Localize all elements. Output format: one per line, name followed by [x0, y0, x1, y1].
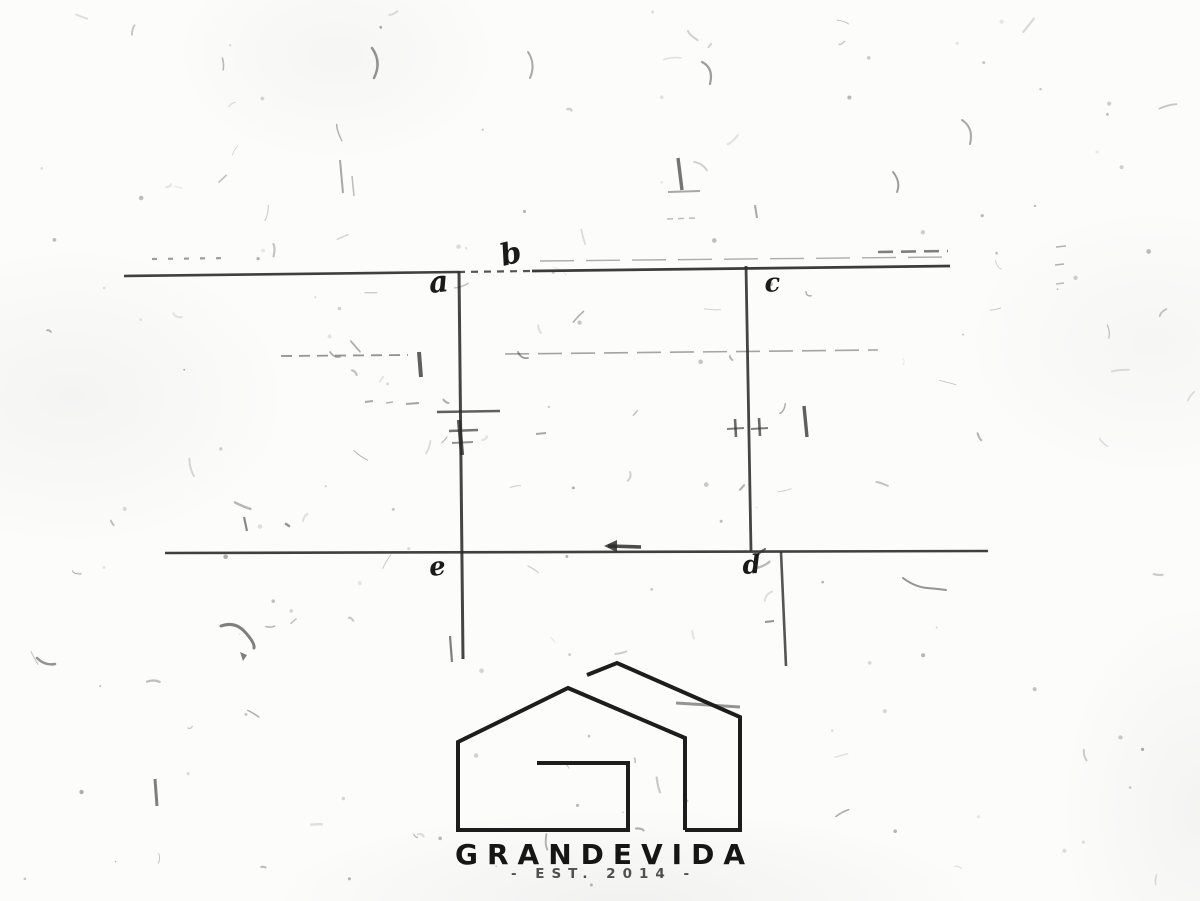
noise-stroke [551, 637, 555, 642]
noise-stroke [265, 205, 269, 220]
sketch-mark [903, 578, 946, 590]
noise-stroke [835, 754, 848, 758]
sketch-segment [406, 403, 419, 404]
noise-speck [479, 668, 484, 673]
noise-stroke [1160, 309, 1167, 316]
noise-speck [847, 95, 851, 99]
noise-speck [139, 318, 142, 321]
noise-stroke [633, 411, 637, 415]
sketch-arrowhead [604, 540, 617, 552]
noise-speck [139, 196, 143, 200]
sketch-mark [221, 624, 254, 648]
noise-stroke [188, 726, 192, 728]
noise-stroke [730, 356, 733, 360]
sketch-mark [37, 658, 55, 664]
noise-speck [982, 61, 985, 64]
noise-stroke [414, 835, 418, 838]
sketch-mark [702, 62, 711, 84]
noise-speck [821, 581, 824, 584]
noise-stroke [806, 292, 811, 296]
noise-speck [590, 884, 593, 887]
noise-speck [244, 713, 247, 716]
sketch-segment [804, 406, 807, 437]
noise-speck [392, 508, 395, 511]
noise-speck [187, 772, 190, 775]
sketch-segment [124, 272, 458, 276]
sketch-mark [372, 48, 378, 78]
noise-speck [1034, 205, 1036, 207]
noise-speck [523, 210, 526, 213]
noise-stroke [688, 31, 698, 40]
noise-stroke [352, 370, 357, 375]
corner-label-b: b [496, 235, 525, 274]
noise-stroke [1154, 574, 1163, 575]
noise-speck [1129, 786, 1132, 789]
noise-speck [1107, 101, 1111, 105]
noise-stroke [273, 244, 274, 256]
noise-speck [588, 735, 591, 738]
noise-stroke [634, 758, 635, 762]
noise-speck [883, 709, 887, 713]
noise-stroke [222, 58, 223, 70]
noise-stroke [349, 618, 354, 621]
noise-speck [325, 485, 327, 487]
noise-speck [651, 11, 654, 14]
noise-speck [660, 95, 664, 99]
noise-speck [258, 524, 263, 529]
noise-stroke [303, 514, 307, 521]
noise-speck [379, 26, 382, 29]
sketch-segment [532, 266, 950, 271]
sketch-arrowhead [240, 652, 247, 661]
noise-stroke [778, 489, 792, 492]
noise-speck [99, 685, 101, 687]
noise-speck [572, 486, 575, 489]
noise-speck [1073, 276, 1077, 280]
noise-stroke [692, 631, 694, 638]
noise-stroke [664, 58, 681, 60]
noise-speck [936, 626, 938, 628]
sketch-segment [678, 158, 682, 190]
noise-stroke [978, 433, 982, 440]
sketch-segment [505, 350, 878, 354]
noise-stroke [939, 380, 956, 384]
noise-speck [704, 482, 709, 487]
noise-stroke [426, 441, 431, 454]
noise-stroke [1100, 439, 1108, 447]
noise-stroke [248, 710, 259, 717]
noise-speck [102, 566, 105, 569]
noise-stroke [73, 571, 82, 574]
noise-speck [698, 360, 703, 365]
noise-speck [868, 661, 872, 665]
noise-speck [1141, 748, 1144, 751]
sketch-segment [152, 258, 232, 259]
noise-stroke [219, 175, 226, 182]
noise-stroke [615, 651, 626, 654]
noise-speck [257, 257, 260, 260]
noise-stroke [573, 311, 583, 322]
noise-stroke [1023, 19, 1034, 32]
corner-label-a: a [427, 264, 450, 301]
noise-speck [565, 555, 568, 558]
noise-stroke [694, 162, 707, 171]
noise-stroke [510, 485, 520, 487]
noise-speck [981, 214, 984, 217]
noise-speck [261, 97, 265, 101]
logo-house-outline [587, 663, 740, 830]
sketch-segment [459, 271, 463, 659]
sketch-segment [751, 428, 768, 429]
noise-stroke [780, 404, 786, 414]
noise-speck [338, 307, 341, 310]
sketch-segment [878, 251, 948, 252]
sketch-segment [540, 257, 946, 261]
noise-speck [548, 406, 550, 408]
noise-stroke [740, 485, 744, 489]
noise-speck [474, 753, 478, 757]
noise-stroke [291, 619, 296, 624]
scan-noise-layer [23, 11, 1194, 887]
noise-speck [1033, 687, 1037, 691]
noise-stroke [444, 400, 449, 403]
sketch-segment [165, 551, 988, 553]
noise-speck [1118, 735, 1122, 739]
sketch-segment [459, 420, 462, 455]
noise-speck [407, 547, 410, 550]
noise-stroke [581, 230, 585, 244]
sketch-segment [755, 205, 757, 218]
noise-speck [568, 653, 571, 656]
sketch-segment [458, 271, 532, 272]
noise-speck [482, 129, 484, 131]
noise-speck [1146, 249, 1151, 254]
sketch-segment [667, 218, 697, 219]
noise-speck [977, 815, 980, 818]
noise-speck [660, 181, 662, 183]
noise-stroke [442, 437, 447, 443]
noise-stroke [455, 283, 469, 288]
logo-house-outline [458, 688, 685, 830]
noise-speck [79, 790, 83, 794]
noise-stroke [1188, 392, 1195, 401]
noise-stroke [174, 314, 182, 318]
noise-stroke [765, 592, 772, 601]
sketch-segment [668, 191, 700, 192]
noise-speck [831, 729, 834, 732]
sketch-mark [330, 352, 340, 357]
sketch-segment [244, 517, 247, 531]
noise-stroke [380, 377, 384, 383]
noise-stroke [311, 824, 322, 825]
noise-speck [183, 369, 185, 371]
noise-speck [650, 588, 653, 591]
sketch-segment [765, 621, 774, 622]
noise-stroke [175, 187, 182, 189]
noise-stroke [337, 125, 342, 141]
noise-stroke [628, 472, 631, 481]
noise-speck [103, 287, 106, 290]
corner-label-d: d [741, 550, 761, 581]
noise-stroke [704, 309, 720, 310]
sketch-mark [528, 52, 533, 78]
noise-stroke [1112, 370, 1129, 372]
noise-stroke [111, 521, 114, 526]
noise-stroke [389, 11, 397, 15]
noise-stroke [337, 235, 348, 240]
noise-speck [622, 811, 624, 813]
sketch-segment [155, 779, 157, 806]
noise-speck [456, 244, 460, 248]
noise-speck [576, 804, 579, 807]
noise-stroke [266, 626, 275, 627]
noise-stroke [482, 436, 486, 440]
noise-speck [921, 653, 925, 657]
sketch-segment [449, 430, 478, 431]
sketch-segment [340, 160, 343, 193]
sketch-segment [437, 411, 500, 412]
noise-stroke [166, 184, 171, 187]
plot-sketch-layer: abced [37, 48, 1066, 806]
noise-speck [289, 609, 293, 613]
sketch-segment [365, 401, 373, 402]
noise-speck [867, 56, 871, 60]
noise-speck [386, 382, 389, 385]
noise-stroke [657, 778, 660, 793]
noise-stroke [147, 681, 160, 682]
noise-stroke [132, 25, 135, 35]
noise-speck [342, 797, 345, 800]
noise-stroke [229, 102, 235, 106]
noise-stroke [996, 260, 1002, 269]
sketch-segment [727, 428, 744, 429]
noise-stroke [76, 15, 87, 19]
noise-stroke [903, 358, 904, 365]
noise-stroke [351, 341, 360, 352]
noise-stroke [567, 109, 571, 111]
noise-speck [358, 581, 362, 585]
noise-stroke [990, 308, 1001, 310]
noise-stroke [47, 330, 51, 332]
noise-stroke [636, 828, 644, 830]
noise-speck [1039, 88, 1041, 90]
noise-stroke [538, 325, 541, 332]
sketch-segment [352, 176, 354, 196]
sketch-mark [286, 524, 289, 526]
sketch-segment [452, 442, 473, 443]
noise-speck [465, 247, 467, 249]
noise-stroke [728, 135, 738, 144]
noise-speck [229, 44, 231, 46]
noise-stroke [383, 555, 391, 569]
noise-speck [1120, 165, 1124, 169]
noise-speck [962, 334, 964, 336]
noise-speck [328, 334, 332, 338]
noise-stroke [235, 502, 251, 509]
sketch-mark [962, 120, 971, 144]
noise-speck [720, 520, 723, 523]
noise-speck [239, 633, 241, 635]
noise-stroke [836, 810, 849, 817]
noise-speck [219, 447, 222, 450]
noise-stroke [1159, 104, 1176, 109]
noise-speck [1106, 113, 1109, 116]
sketch-segment [781, 552, 786, 666]
noise-speck [261, 249, 265, 253]
noise-speck [995, 252, 998, 255]
logo-tagline-text: - EST. 2014 - [0, 866, 1200, 882]
noise-stroke [1107, 325, 1109, 338]
noise-speck [921, 230, 925, 234]
noise-speck [712, 238, 717, 243]
sketch-segment [746, 266, 751, 551]
sketch-segment [386, 402, 393, 403]
noise-stroke [233, 147, 238, 155]
sketch-segment [419, 352, 421, 377]
noise-stroke [528, 566, 538, 573]
noise-speck [53, 238, 57, 242]
noise-speck [1057, 288, 1059, 290]
noise-stroke [1084, 750, 1087, 761]
sketch-mark [518, 352, 528, 358]
noise-stroke [189, 459, 194, 476]
sketch-segment [450, 636, 452, 662]
noise-speck [314, 296, 316, 298]
sketch-mark [893, 172, 898, 192]
sketch-segment [1056, 283, 1064, 284]
sketch-canvas: abced [0, 0, 1200, 901]
noise-stroke [418, 834, 423, 837]
scanned-document-page: abced GRANDEVIDA - EST. 2014 - [0, 0, 1200, 901]
noise-stroke [839, 41, 845, 44]
noise-speck [893, 829, 897, 833]
noise-speck [40, 167, 43, 170]
sketch-segment [281, 355, 408, 356]
sketch-segment [1055, 264, 1064, 265]
noise-speck [123, 507, 127, 511]
noise-stroke [877, 482, 888, 486]
noise-stroke [708, 44, 711, 47]
corner-label-e: e [428, 551, 448, 583]
noise-speck [956, 42, 959, 45]
noise-speck [756, 507, 758, 509]
noise-speck [1096, 150, 1099, 153]
noise-speck [577, 320, 581, 324]
corner-label-c: c [763, 268, 781, 299]
sketch-segment [1056, 246, 1066, 247]
noise-speck [271, 599, 275, 603]
noise-speck [223, 554, 228, 559]
logo-house-icon [458, 663, 740, 830]
sketch-segment [759, 418, 760, 436]
noise-stroke [837, 20, 849, 24]
sketch-segment [536, 433, 546, 434]
noise-stroke [354, 451, 368, 461]
noise-speck [999, 20, 1003, 24]
